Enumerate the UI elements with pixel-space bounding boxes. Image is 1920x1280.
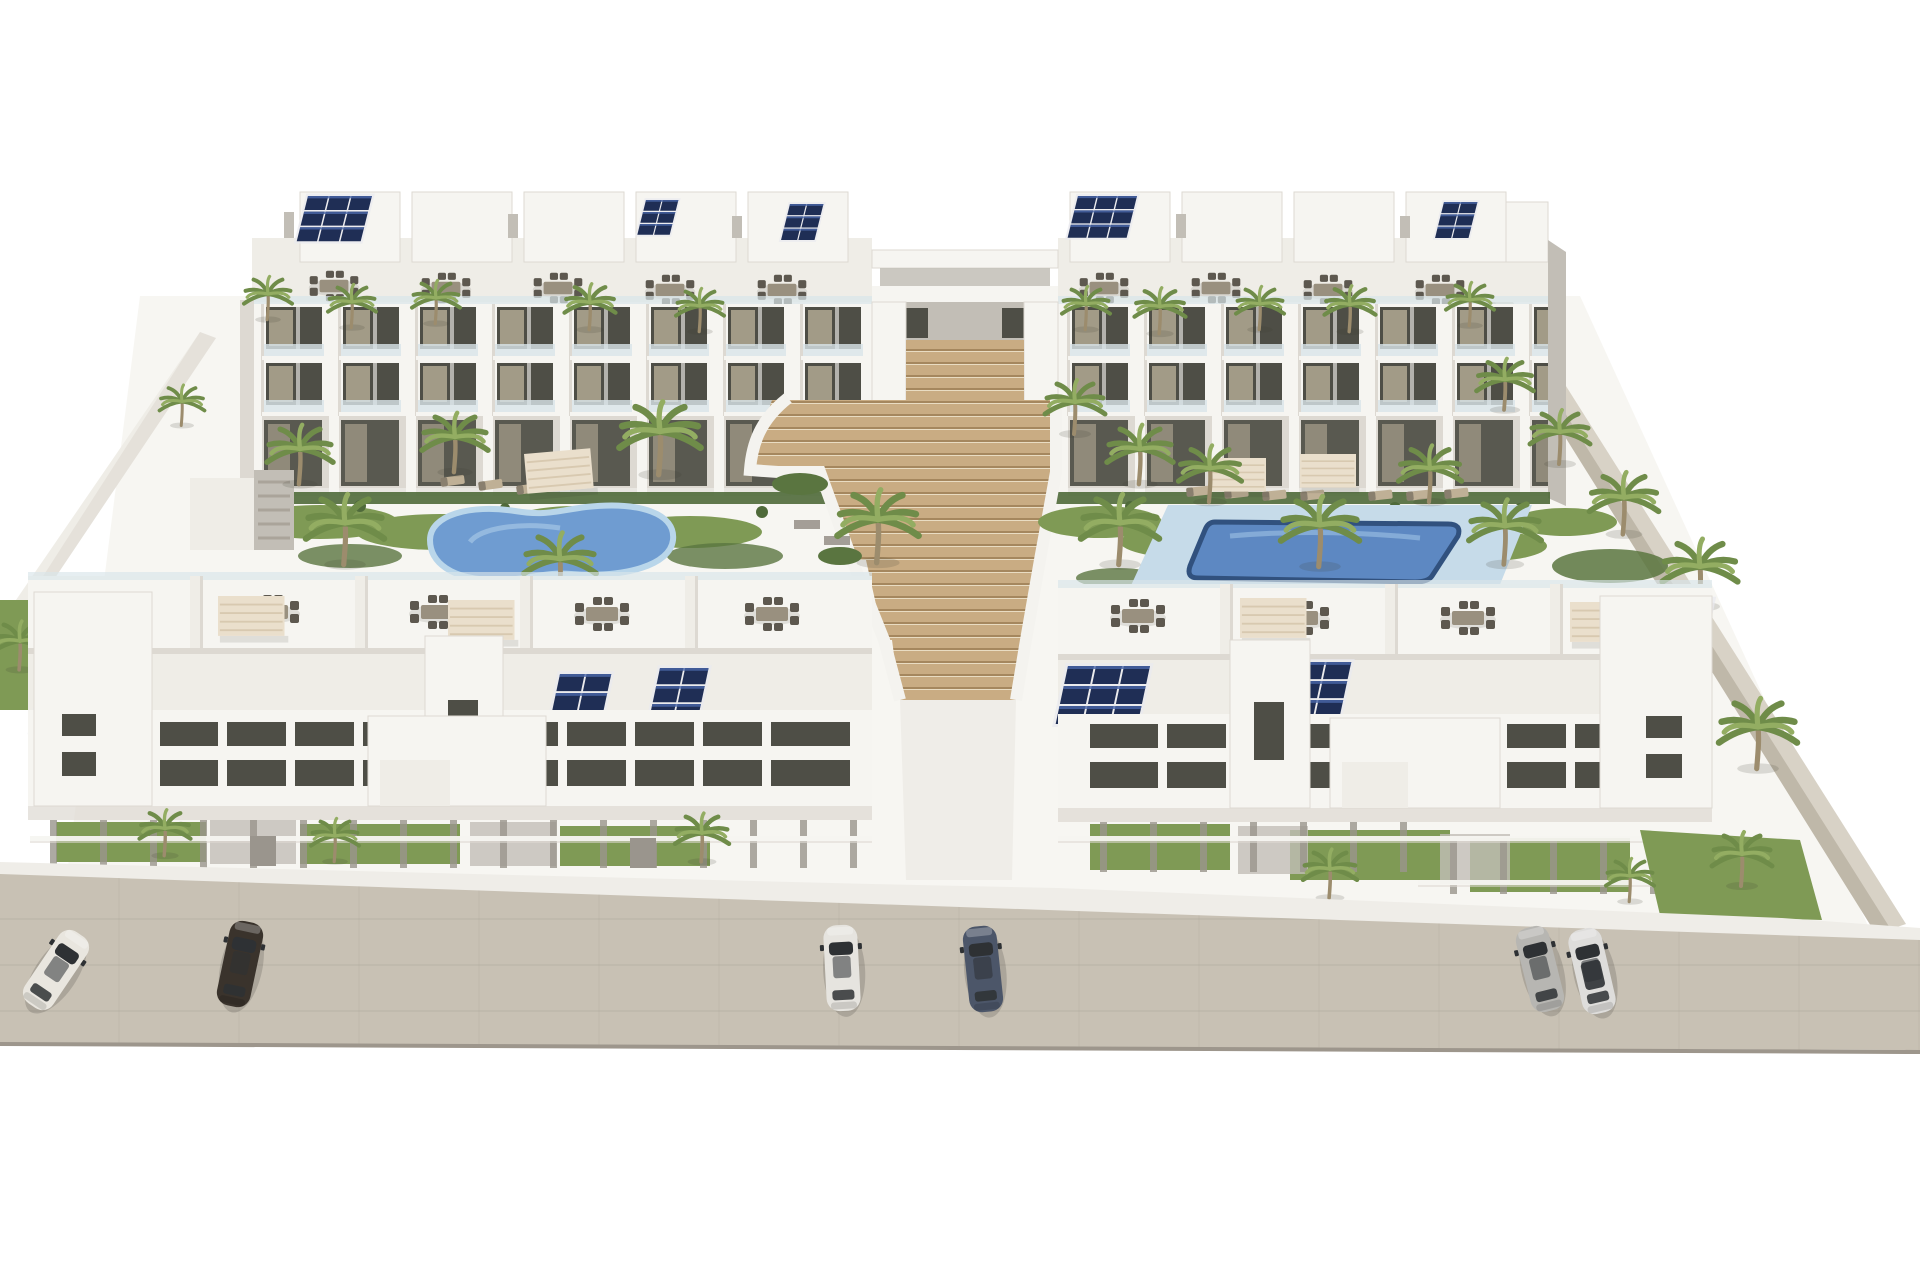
stair-flight-bottom	[892, 640, 1026, 700]
solar-panel-array	[1065, 194, 1140, 240]
stair-planting	[818, 547, 862, 565]
stair-flight-lower	[866, 560, 1040, 640]
corner-lawn	[1640, 830, 1822, 920]
chimney	[732, 216, 742, 238]
gate	[630, 838, 656, 868]
left-side-structures	[190, 470, 294, 550]
west-end-wall	[240, 300, 254, 498]
balcony-floors	[1058, 304, 1548, 416]
end-tower	[34, 592, 152, 806]
base-band	[1058, 808, 1712, 822]
stair-fan-upper	[748, 400, 1056, 472]
solar-panel-array	[294, 194, 375, 244]
end-tower	[1600, 596, 1712, 808]
garden-fence	[1058, 822, 1418, 872]
chimney	[508, 214, 518, 238]
stair-tower-right	[1024, 302, 1058, 410]
render-canvas	[0, 0, 1920, 1280]
upper-flight	[906, 340, 1024, 400]
central-walkway	[900, 700, 1016, 880]
chimney	[1400, 216, 1410, 238]
gate	[250, 836, 276, 866]
garage-volume	[1330, 718, 1500, 808]
mid-tower	[1230, 640, 1310, 808]
architectural-rendering	[0, 0, 1920, 1280]
terrace-glass-railing	[28, 572, 872, 580]
stair-planting	[772, 473, 828, 495]
front-right-apartment-block	[1052, 580, 1822, 920]
garage-volume	[368, 716, 546, 806]
stair-tower-left	[872, 302, 906, 410]
bench	[794, 520, 820, 529]
chimney	[1176, 214, 1186, 238]
chimney	[284, 212, 294, 238]
